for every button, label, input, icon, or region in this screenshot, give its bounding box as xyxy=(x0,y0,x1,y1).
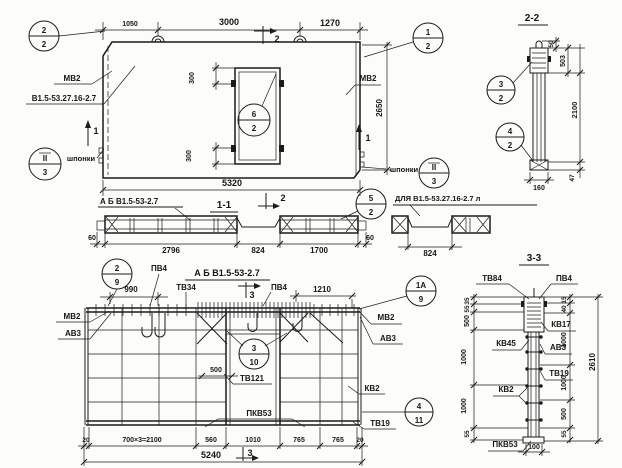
dim-47: 47 xyxy=(569,174,576,182)
dim-35-left: 35 xyxy=(464,297,471,305)
sec1-left-text: 1 xyxy=(93,126,98,136)
dim-503: 503 xyxy=(560,55,567,67)
sec3-top-text: 3 xyxy=(249,290,254,300)
dim-1270: 1270 xyxy=(320,18,340,28)
dim-1000-left-b: 1000 xyxy=(461,398,468,414)
dim-700x3: 700×3=2100 xyxy=(122,437,161,444)
balloon-2-9: 2 9 xyxy=(102,259,132,306)
sec2-bottom-text: 2 xyxy=(280,193,285,203)
section-3-3-dims-left: 35 55 500 1000 1000 55 xyxy=(461,294,528,443)
tv19-plan-text: ТВ19 xyxy=(370,419,390,428)
balloon-key-right-sheet: 3 xyxy=(432,177,437,186)
balloon-3-10-sheet: 10 xyxy=(250,358,259,367)
dim-1210: 1210 xyxy=(313,285,331,294)
section-marker-1-right: 1 xyxy=(356,124,371,150)
kv45-text: КВ45 xyxy=(496,339,516,348)
section-1-1-title: 1-1 xyxy=(217,200,232,211)
dim-1010: 1010 xyxy=(245,437,261,444)
series-text: В1.5-53.27.16-2.7 xyxy=(32,94,97,103)
dim-55-right: 55 xyxy=(561,430,568,438)
balloon-1-2: 1 2 xyxy=(364,23,443,57)
dim-2610: 2610 xyxy=(588,353,597,371)
mv2-right-text: МВ2 xyxy=(360,74,377,83)
dim-55-left-bottom: 55 xyxy=(464,430,471,438)
dim-20-right: 20 xyxy=(356,437,364,444)
balloon-4-2: 4 2 xyxy=(496,123,533,161)
dim-1000-right-b: 1000 xyxy=(561,375,568,391)
balloon-2-9-num: 2 xyxy=(115,264,120,273)
section-3-3: 3-3 xyxy=(519,253,549,443)
dim-40-right: 40 xyxy=(561,305,568,313)
balloon-4-2-num: 4 xyxy=(508,127,513,136)
section-1-1-variant: ДЛЯ В1.5-53.27.16-2.7 л 824 xyxy=(392,194,537,258)
width-dimension: 5320 xyxy=(100,178,363,196)
dim-160: 160 xyxy=(533,185,545,192)
balloon-1a-9-sheet: 9 xyxy=(419,295,424,304)
dim-1000-right-a: 1000 xyxy=(561,332,568,348)
section-2-2: 2-2 50 503 2100 47 160 xyxy=(518,13,585,192)
section-marker-3-top: 3 xyxy=(238,282,261,300)
dim-15-right: 15 xyxy=(561,296,568,304)
av3-plan-left-text: АВ3 xyxy=(65,329,82,338)
dim-2100: 2100 xyxy=(570,102,579,119)
drawing-canvas: 1050 3000 1270 2650 5320 300 300 МВ2 В1.… xyxy=(0,0,622,468)
section-marker-2-bottom: 2 xyxy=(258,193,286,209)
kv17-text: КВ17 xyxy=(551,320,571,329)
label-series: В1.5-53.27.16-2.7 xyxy=(26,66,135,104)
section-1-1: А Б В1.5-53-2.7 1-1 60 2796 824 1700 60 xyxy=(88,197,374,255)
section-marker-3-bottom: 3 xyxy=(236,447,259,461)
dim-560: 560 xyxy=(205,437,217,444)
dim-765-b: 765 xyxy=(332,437,344,444)
dim-824: 824 xyxy=(251,246,265,255)
dim-50: 50 xyxy=(548,40,555,48)
plan-bottom-dimensions: 20 700×3=2100 560 1010 765 765 20 5240 xyxy=(78,427,368,466)
dim-3000: 3000 xyxy=(219,17,239,27)
balloon-key-right-num: II xyxy=(432,163,436,172)
dim-55-left-top: 55 xyxy=(464,305,471,313)
dim-20-left: 20 xyxy=(82,437,90,444)
balloon-4-2-sheet: 2 xyxy=(508,141,513,150)
balloon-3-10-num: 3 xyxy=(252,344,257,353)
section-1-1-label: А Б В1.5-53-2.7 xyxy=(100,197,159,206)
balloon-4-11-sheet: 11 xyxy=(415,416,424,425)
av3-plan-right-text: АВ3 xyxy=(380,334,397,343)
top-dimension-chain: 1050 3000 1270 xyxy=(95,17,368,40)
balloon-1-2-sheet: 2 xyxy=(426,42,431,51)
section-marker-1-left: 1 xyxy=(85,120,99,146)
balloon-6-2-sheet: 2 xyxy=(252,124,257,133)
balloon-3-2-num: 3 xyxy=(499,80,504,89)
dim-5320: 5320 xyxy=(222,178,242,188)
dim-990: 990 xyxy=(124,285,138,294)
dim-2796: 2796 xyxy=(162,246,180,255)
dim-500-lintel: 500 xyxy=(198,367,238,379)
section-3-3-title: 3-3 xyxy=(527,253,542,264)
balloon-3-10: 3 10 xyxy=(227,331,287,369)
balloon-3-2-sheet: 2 xyxy=(499,94,504,103)
balloon-2-2-num: 2 xyxy=(42,26,47,35)
dim-500: 500 xyxy=(210,367,222,374)
pv4-right-text: ПВ4 xyxy=(271,283,288,292)
pv4-left-text: ПВ4 xyxy=(151,264,168,273)
dim-60-left: 60 xyxy=(88,235,96,242)
pkv53-plan-text: ПКВ53 xyxy=(246,409,272,418)
section-2-2-title: 2-2 xyxy=(525,13,540,24)
pv4-33-text: ПВ4 xyxy=(556,274,573,283)
engineering-drawing-sheet: 1050 3000 1270 2650 5320 300 300 МВ2 В1.… xyxy=(0,0,622,468)
dim-door-300-top: 300 xyxy=(189,72,196,84)
reinforcement-grid xyxy=(85,302,361,425)
balloon-2-2-sheet: 2 xyxy=(42,40,47,49)
pkv53-33-text: ПКВ53 xyxy=(492,440,518,449)
mv2-left-text: МВ2 xyxy=(64,74,81,83)
dim-1050: 1050 xyxy=(122,21,138,28)
balloon-4-11-num: 4 xyxy=(417,402,422,411)
kv2-plan-text: КВ2 xyxy=(364,384,380,393)
balloon-6-2-num: 6 xyxy=(252,110,257,119)
dim-1700: 1700 xyxy=(310,246,328,255)
dim-824-variant: 824 xyxy=(423,249,437,258)
keys-left-text: шпонки xyxy=(67,154,96,163)
label-mark-mv2-right: МВ2 xyxy=(346,74,381,95)
variant-label: ДЛЯ В1.5-53.27.16-2.7 л xyxy=(395,194,481,203)
dim-765-a: 765 xyxy=(293,437,305,444)
plan-title-text: А Б В1.5-53-2.7 xyxy=(194,268,260,278)
balloon-1a-9-num: 1А xyxy=(416,281,426,290)
dim-500-left: 500 xyxy=(464,315,471,327)
dim-1000-left-a: 1000 xyxy=(461,349,468,365)
sec2-top-text: 2 xyxy=(274,34,279,44)
dim-500-right: 500 xyxy=(561,408,568,420)
balloon-1-2-num: 1 xyxy=(426,28,431,37)
height-dimension: 2650 xyxy=(362,42,392,175)
tv34-text: ТВ34 xyxy=(176,283,196,292)
sec1-right-text: 1 xyxy=(365,133,370,143)
tv121-text: ТВ121 xyxy=(240,374,265,383)
dim-2650: 2650 xyxy=(375,99,384,117)
keys-right-text: шпонки xyxy=(390,165,419,174)
panel-elevation-outline xyxy=(99,36,364,178)
kv2-33-text: КВ2 xyxy=(498,385,514,394)
dim-door-300-bottom: 300 xyxy=(186,150,193,162)
tv84-text: ТВ84 xyxy=(482,274,502,283)
balloon-key-right: II 3 шпонки xyxy=(362,158,449,188)
balloon-5-2: 5 2 xyxy=(341,189,386,219)
plan-labels-right: МВ2 АВ3 КВ2 ТВ19 xyxy=(348,311,403,429)
plan-title: А Б В1.5-53-2.7 xyxy=(185,268,270,280)
balloon-2-2: 2 2 xyxy=(29,21,105,51)
balloon-key-left-num: II xyxy=(43,154,47,163)
door-300-dimensions: 300 300 xyxy=(186,62,235,170)
balloon-key-left-sheet: 3 xyxy=(43,168,48,177)
balloon-6-2-door: 6 2 xyxy=(238,74,276,136)
mv2-plan-right-text: МВ2 xyxy=(378,313,395,322)
dim-5240: 5240 xyxy=(201,450,221,460)
balloon-1a-9: 1А 9 xyxy=(359,276,436,309)
dim-100: 100 xyxy=(528,444,540,451)
balloon-3-2: 3 2 xyxy=(487,62,532,104)
plan-labels-left: МВ2 АВ3 xyxy=(56,311,111,339)
dim-60-right: 60 xyxy=(366,235,374,242)
balloon-5-2-sheet: 2 xyxy=(369,208,374,217)
balloon-key-left: II 3 шпонки xyxy=(29,148,104,180)
label-tv121: ТВ121 xyxy=(224,374,272,384)
sec3-bottom-text: 3 xyxy=(247,448,252,458)
mv2-plan-left-text: МВ2 xyxy=(64,312,81,321)
balloon-5-2-num: 5 xyxy=(369,194,374,203)
balloon-2-9-sheet: 9 xyxy=(115,278,120,287)
